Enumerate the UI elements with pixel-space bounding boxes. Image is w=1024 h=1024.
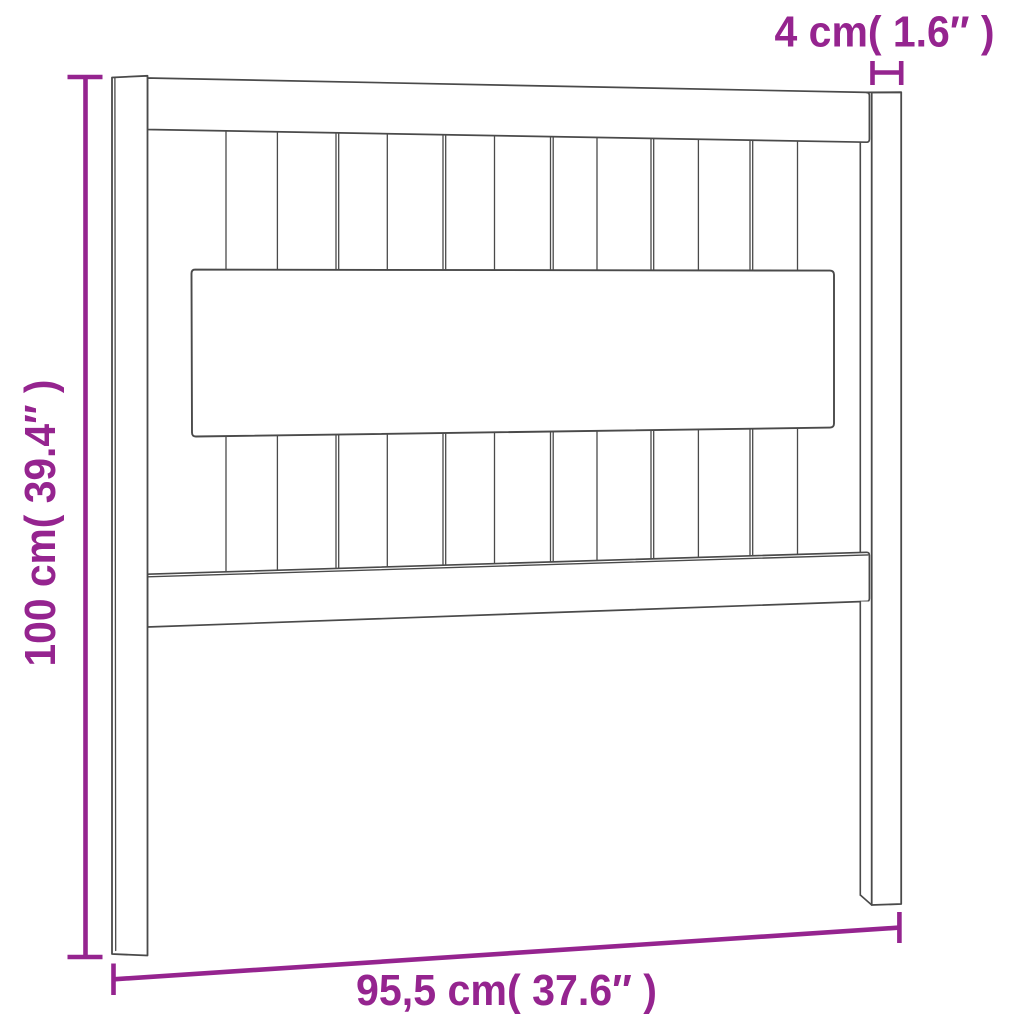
svg-text:100 cm( 39.4″ ): 100 cm( 39.4″ ) [16, 380, 65, 667]
svg-text:4 cm( 1.6″ ): 4 cm( 1.6″ ) [775, 8, 995, 57]
svg-text:95,5 cm( 37.6″ ): 95,5 cm( 37.6″ ) [356, 966, 657, 1015]
